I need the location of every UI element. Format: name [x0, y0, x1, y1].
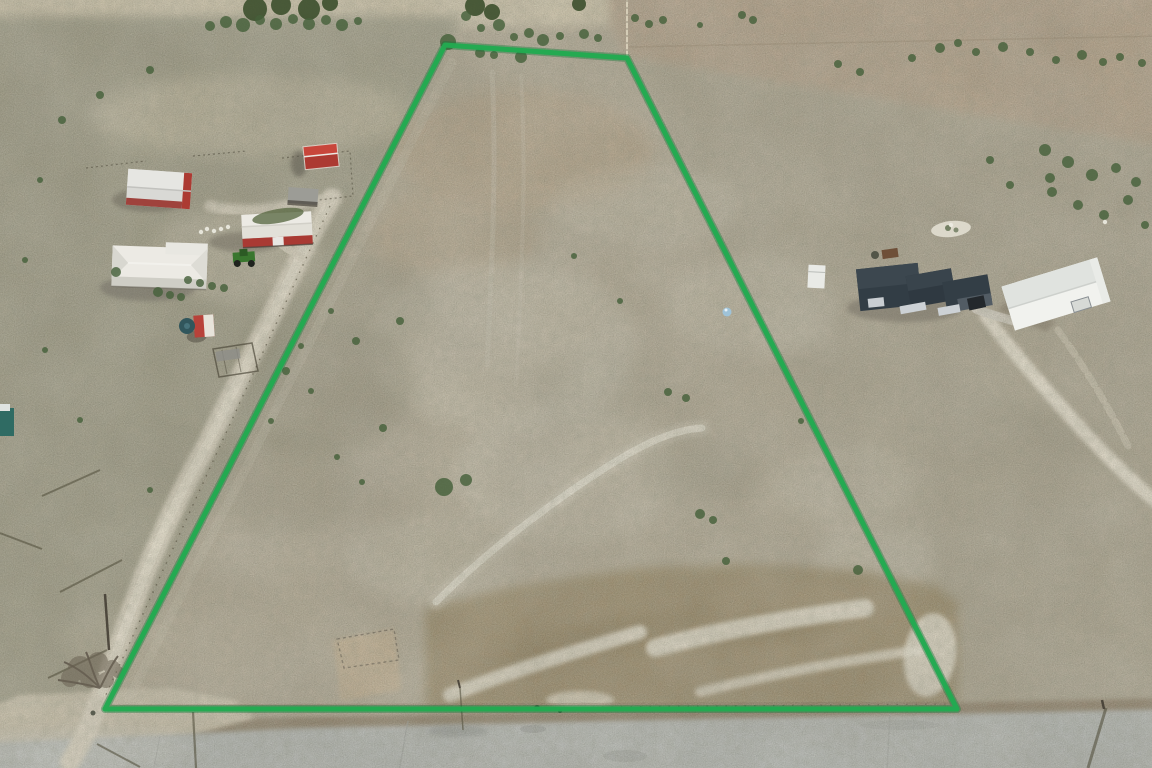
bush: [556, 32, 564, 40]
bush: [537, 34, 549, 46]
bush: [205, 21, 215, 31]
bush: [1141, 221, 1149, 229]
bush: [220, 16, 232, 28]
bush: [308, 388, 314, 394]
bush: [303, 18, 315, 30]
bush: [1138, 59, 1146, 67]
bush: [477, 24, 485, 32]
dark-tuft: [871, 251, 879, 259]
bush: [111, 267, 121, 277]
bush: [571, 253, 577, 259]
bush: [972, 48, 980, 56]
bush: [1039, 144, 1051, 156]
bush: [1131, 177, 1141, 187]
bush: [460, 474, 472, 486]
bush: [177, 293, 185, 301]
bush: [986, 156, 994, 164]
bush: [1047, 187, 1057, 197]
farmhouse: [111, 240, 208, 289]
bush: [147, 487, 153, 493]
bush: [196, 279, 204, 287]
bush: [645, 20, 653, 28]
bush: [435, 478, 453, 496]
dark-tuft: [91, 711, 96, 716]
bush: [379, 424, 387, 432]
mound-brush: [954, 228, 959, 233]
bush: [288, 14, 298, 24]
white-speck: [205, 227, 209, 231]
bush: [695, 509, 705, 519]
bush: [298, 343, 304, 349]
bush: [664, 388, 672, 396]
bush: [998, 42, 1008, 52]
bush: [738, 11, 746, 19]
bush: [146, 66, 154, 74]
bush: [461, 11, 471, 21]
bush: [1062, 156, 1074, 168]
bush: [631, 14, 639, 22]
bush: [1086, 169, 1098, 181]
bush: [184, 276, 192, 284]
bush: [697, 22, 703, 28]
white-speck: [212, 229, 216, 233]
bush: [255, 15, 265, 25]
bush: [709, 516, 717, 524]
bush: [42, 347, 48, 353]
bush: [270, 18, 282, 30]
white-speck: [949, 223, 953, 227]
bush: [682, 394, 690, 402]
bush: [594, 34, 602, 42]
bush: [328, 308, 334, 314]
bush: [798, 418, 804, 424]
bush: [321, 15, 331, 25]
bush: [659, 16, 667, 24]
aerial-photo: [0, 0, 1152, 768]
bush: [853, 565, 863, 575]
bush: [153, 287, 163, 297]
bush: [220, 284, 228, 292]
bush: [1123, 195, 1133, 205]
bush: [1116, 53, 1124, 61]
bush: [1073, 200, 1083, 210]
house-wall: [868, 297, 885, 308]
bush: [58, 116, 66, 124]
water-tank-lid: [184, 323, 190, 329]
bush: [96, 91, 104, 99]
white-speck: [199, 230, 203, 234]
bush: [1026, 48, 1034, 56]
blue-barrel-highlight: [725, 309, 728, 312]
bush: [749, 16, 757, 24]
bush: [1099, 58, 1107, 66]
camper-trailer: [807, 265, 825, 289]
bush: [1006, 181, 1014, 189]
bush: [1077, 50, 1087, 60]
teal-roof-structure: [0, 404, 14, 436]
white-speck: [1103, 220, 1107, 224]
bush: [354, 17, 362, 25]
tree: [484, 4, 500, 20]
photo-grain: [0, 0, 1152, 768]
bush: [579, 29, 589, 39]
bush: [722, 557, 730, 565]
bush: [524, 28, 534, 38]
bush: [77, 417, 83, 423]
bush: [359, 479, 365, 485]
white-speck: [226, 225, 230, 229]
bush: [834, 60, 842, 68]
bush: [37, 177, 43, 183]
bush: [1099, 210, 1109, 220]
bush: [22, 257, 28, 263]
loafing-shed: [287, 187, 318, 207]
bush: [1111, 163, 1121, 173]
bush: [510, 33, 518, 41]
bush: [856, 68, 864, 76]
bush: [1052, 56, 1060, 64]
bush: [1045, 173, 1055, 183]
bush: [166, 291, 174, 299]
barn-white-door: [272, 237, 283, 247]
bush: [493, 19, 505, 31]
white-speck: [219, 227, 223, 231]
red-shed: [303, 143, 339, 169]
bush: [352, 337, 360, 345]
blue-barrel: [723, 308, 732, 317]
bush: [935, 43, 945, 53]
bush: [334, 454, 340, 460]
bush: [396, 317, 404, 325]
metal-roof-barn: [126, 169, 192, 209]
aerial-photo-canvas: [0, 0, 1152, 768]
bush: [268, 418, 274, 424]
bush: [208, 282, 216, 290]
bush: [336, 19, 348, 31]
bush: [908, 54, 916, 62]
bush: [236, 18, 250, 32]
bush: [617, 298, 623, 304]
bush: [954, 39, 962, 47]
